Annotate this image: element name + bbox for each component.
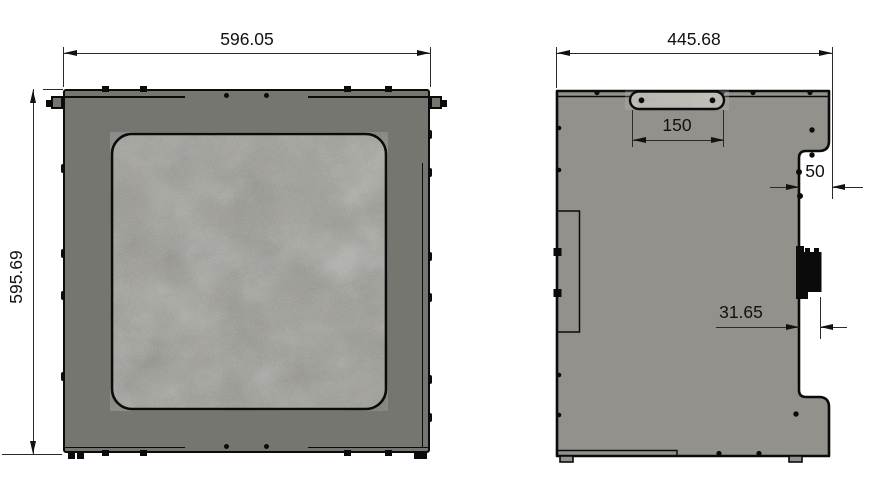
edge-tick bbox=[102, 86, 109, 92]
edge-tick bbox=[140, 86, 147, 92]
dim-arrow-icon bbox=[711, 137, 724, 143]
rivet-dot bbox=[224, 444, 229, 449]
edge-bump bbox=[61, 164, 65, 173]
edge-bump bbox=[428, 293, 432, 302]
dim-step-depth: 50 bbox=[797, 161, 833, 181]
edge-tick bbox=[140, 450, 147, 456]
dim-arrow-icon bbox=[832, 184, 845, 190]
dim-arrow-icon bbox=[557, 50, 570, 56]
rivet-dot bbox=[716, 451, 721, 456]
dim-arrow-icon bbox=[633, 137, 646, 143]
handle-screw bbox=[710, 97, 716, 103]
hinge-tab-right bbox=[430, 96, 442, 109]
edge-bump bbox=[428, 168, 432, 177]
ext-line bbox=[820, 297, 821, 339]
edge-bump bbox=[797, 193, 803, 199]
window-texture bbox=[112, 134, 386, 409]
hinge-nub-right bbox=[442, 100, 447, 107]
edge-tick bbox=[344, 86, 351, 92]
dim-arrow-icon bbox=[819, 50, 832, 56]
front-window bbox=[110, 132, 388, 411]
rivet-dot bbox=[264, 444, 269, 449]
edge-bump bbox=[61, 291, 65, 300]
dim-arrow-icon bbox=[786, 184, 799, 190]
front-panel bbox=[63, 89, 430, 453]
edge-tick bbox=[102, 450, 109, 456]
hinge-nub-left bbox=[46, 100, 51, 107]
slot-clip bbox=[554, 248, 562, 256]
edge-bump bbox=[428, 130, 432, 139]
dim-arrow-icon bbox=[820, 324, 833, 330]
dim-handle-width: 150 bbox=[639, 115, 715, 135]
rivet-dot bbox=[756, 451, 761, 456]
drawing-canvas: 596.05 595.69 bbox=[0, 0, 889, 487]
handle-screw bbox=[639, 97, 645, 103]
foot bbox=[560, 456, 573, 462]
foot bbox=[789, 456, 802, 462]
bottom-lip-right bbox=[308, 447, 428, 449]
dim-arrow-icon bbox=[786, 324, 799, 330]
foot bbox=[414, 452, 427, 459]
top-lip-right bbox=[308, 96, 428, 98]
rivet-dot bbox=[264, 93, 269, 98]
foot bbox=[68, 452, 75, 459]
dim-arrow-icon bbox=[30, 90, 36, 103]
hinge-tab-left bbox=[51, 96, 63, 109]
dim-front-width: 596.05 bbox=[189, 29, 305, 49]
edge-bump bbox=[428, 252, 432, 261]
dim-arrow-icon bbox=[64, 50, 77, 56]
side-panel-outline bbox=[557, 91, 829, 456]
rivet-dot bbox=[224, 93, 229, 98]
edge-bump bbox=[428, 413, 432, 422]
dim-front-height: 595.69 bbox=[6, 233, 26, 321]
edge-bump bbox=[61, 372, 65, 381]
edge-bump bbox=[809, 152, 814, 157]
ext-line bbox=[430, 47, 431, 87]
edge-tick bbox=[385, 86, 392, 92]
edge-tick bbox=[344, 450, 351, 456]
front-window-svg bbox=[110, 132, 388, 411]
fold-line bbox=[422, 163, 423, 448]
dim-connector-offset: 31.65 bbox=[697, 302, 785, 322]
dim-line bbox=[557, 53, 833, 54]
rivet-dot bbox=[809, 127, 814, 132]
dim-arrow-icon bbox=[417, 50, 430, 56]
edge-bump bbox=[428, 375, 432, 384]
rivet-dot bbox=[793, 411, 798, 416]
dim-line bbox=[33, 89, 34, 454]
dim-side-width: 445.68 bbox=[636, 29, 752, 49]
foot bbox=[77, 452, 84, 459]
top-lip-left bbox=[65, 96, 185, 98]
side-view bbox=[545, 40, 889, 470]
ext-line bbox=[43, 89, 63, 90]
dim-arrow-icon bbox=[30, 441, 36, 454]
dim-line bbox=[63, 53, 430, 54]
connector-port bbox=[796, 246, 822, 299]
bottom-lip-left bbox=[65, 447, 185, 449]
edge-bump bbox=[61, 249, 65, 258]
slot-clip bbox=[554, 289, 562, 297]
edge-tick bbox=[385, 450, 392, 456]
